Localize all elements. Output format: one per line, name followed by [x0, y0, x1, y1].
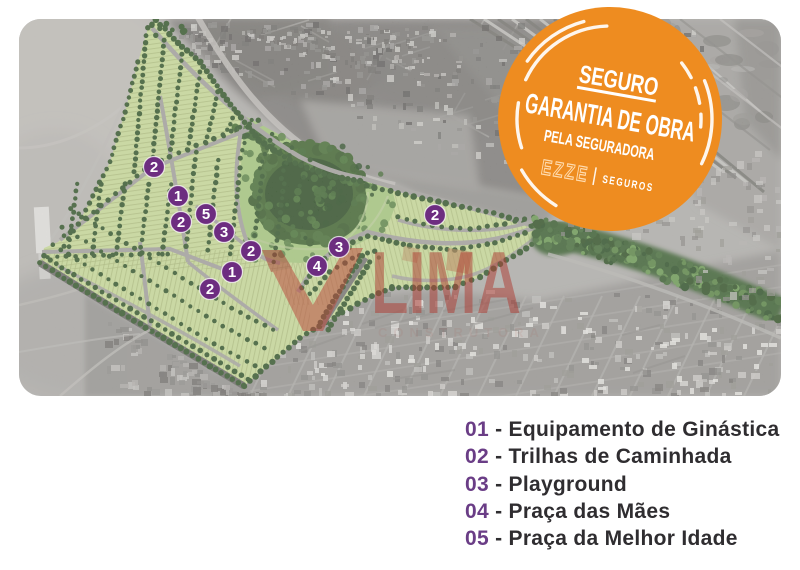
svg-text:3: 3 — [335, 239, 343, 256]
svg-text:2: 2 — [150, 159, 158, 176]
svg-text:2: 2 — [177, 214, 185, 231]
svg-text:2: 2 — [206, 281, 214, 298]
svg-text:1: 1 — [174, 188, 182, 205]
svg-text:5: 5 — [202, 206, 210, 223]
svg-text:3: 3 — [220, 224, 228, 241]
svg-text:LIMA: LIMA — [371, 233, 521, 332]
svg-text:1: 1 — [228, 264, 236, 281]
svg-text:4: 4 — [313, 258, 322, 275]
svg-text:2: 2 — [431, 207, 439, 224]
svg-text:2: 2 — [247, 243, 255, 260]
svg-text:CONSTRUTORA: CONSTRUTORA — [378, 325, 545, 340]
